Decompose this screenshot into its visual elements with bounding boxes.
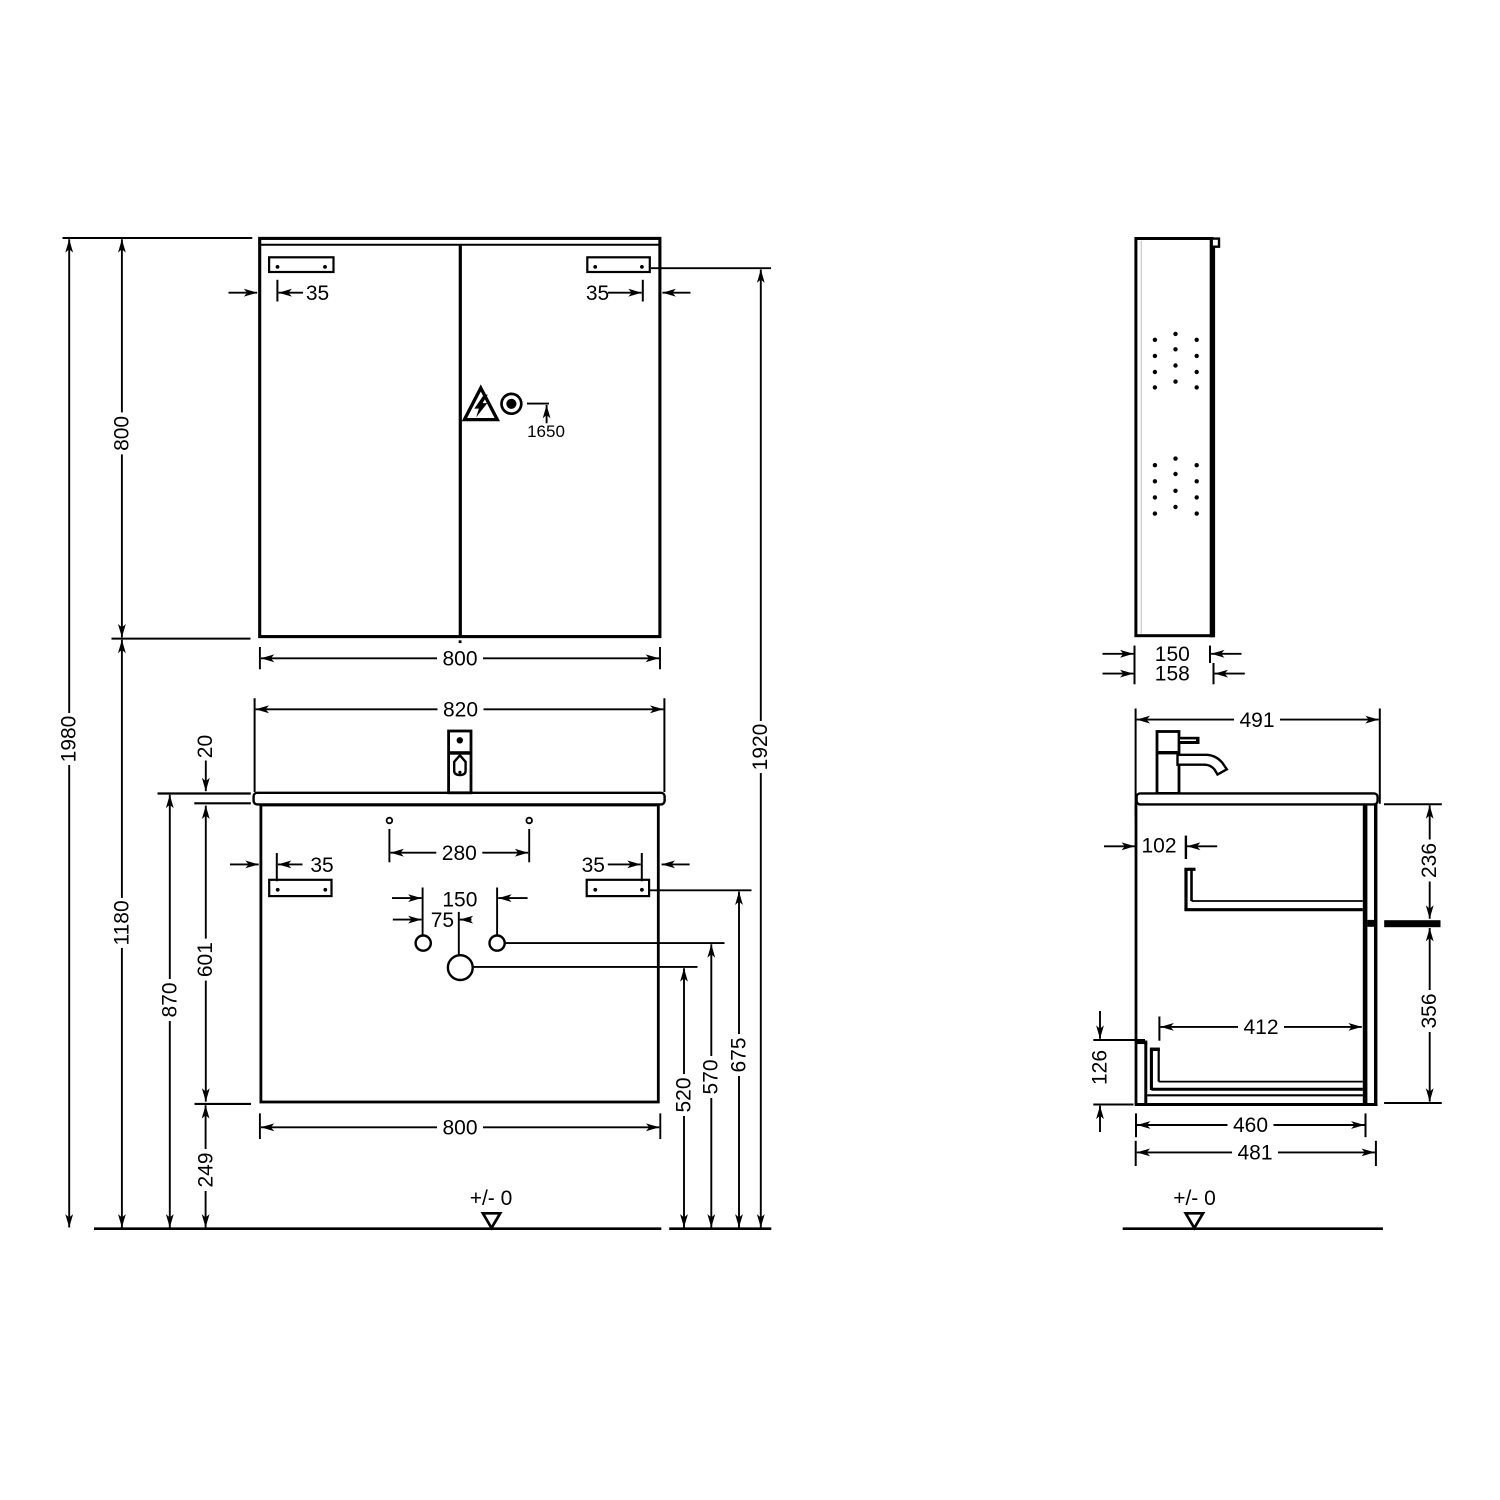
svg-text:1180: 1180 bbox=[110, 900, 133, 945]
svg-text:412: 412 bbox=[1243, 1016, 1278, 1039]
svg-text:460: 460 bbox=[1233, 1114, 1268, 1137]
svg-text:601: 601 bbox=[194, 942, 217, 977]
svg-text:1650: 1650 bbox=[527, 422, 565, 441]
svg-text:800: 800 bbox=[110, 416, 133, 451]
svg-text:20: 20 bbox=[194, 735, 217, 758]
svg-text:800: 800 bbox=[442, 1117, 477, 1140]
svg-text:35: 35 bbox=[310, 854, 333, 877]
svg-text:356: 356 bbox=[1418, 993, 1441, 1028]
svg-text:236: 236 bbox=[1418, 843, 1441, 878]
svg-text:481: 481 bbox=[1237, 1142, 1272, 1165]
svg-text:150: 150 bbox=[442, 888, 477, 911]
svg-text:280: 280 bbox=[442, 842, 477, 865]
svg-text:75: 75 bbox=[431, 909, 454, 932]
svg-text:126: 126 bbox=[1088, 1050, 1111, 1085]
svg-text:249: 249 bbox=[194, 1152, 217, 1187]
svg-text:800: 800 bbox=[442, 648, 477, 671]
svg-text:35: 35 bbox=[582, 854, 605, 877]
svg-text:1920: 1920 bbox=[749, 724, 772, 771]
svg-text:520: 520 bbox=[672, 1077, 695, 1112]
svg-text:158: 158 bbox=[1155, 663, 1190, 686]
svg-text:820: 820 bbox=[443, 699, 478, 722]
svg-text:491: 491 bbox=[1239, 709, 1274, 732]
svg-text:870: 870 bbox=[158, 982, 181, 1017]
svg-text:+/- 0: +/- 0 bbox=[1173, 1187, 1216, 1210]
svg-text:1980: 1980 bbox=[58, 716, 81, 763]
svg-text:35: 35 bbox=[586, 282, 609, 305]
svg-text:570: 570 bbox=[700, 1059, 723, 1094]
svg-text:675: 675 bbox=[727, 1037, 750, 1072]
svg-text:35: 35 bbox=[306, 282, 329, 305]
svg-text:+/- 0: +/- 0 bbox=[470, 1187, 513, 1210]
svg-text:102: 102 bbox=[1141, 835, 1176, 858]
